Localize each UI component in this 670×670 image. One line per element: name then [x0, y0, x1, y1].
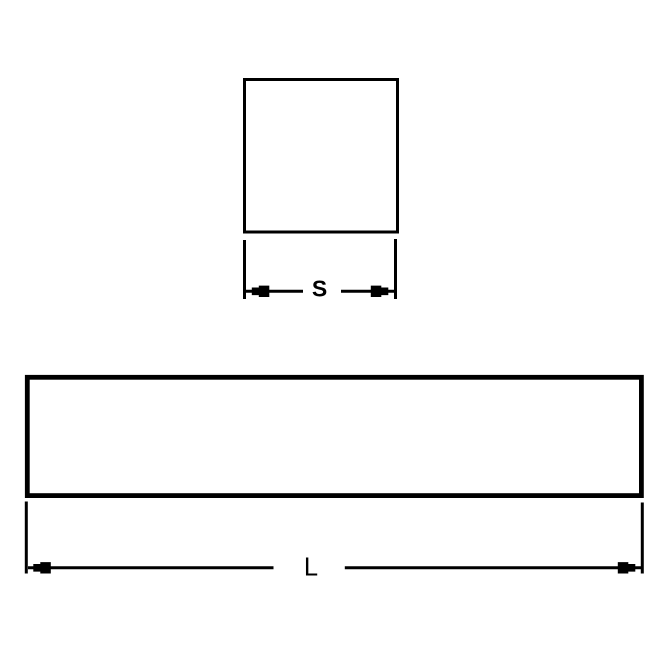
svg-text:S: S: [312, 276, 327, 302]
svg-text:L: L: [304, 554, 318, 582]
